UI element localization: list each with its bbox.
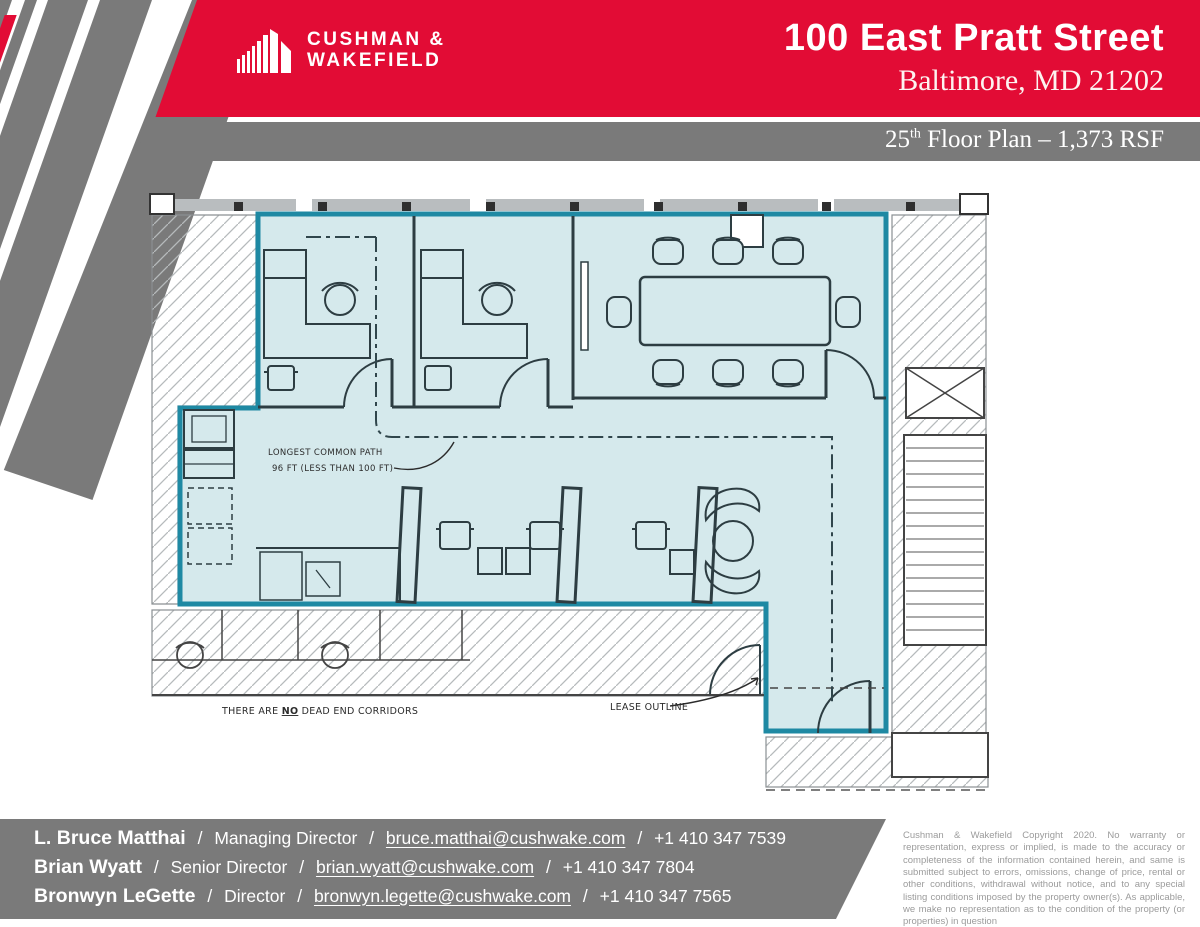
disclaimer-text: Cushman & Wakefield Copyright 2020. No w…: [903, 830, 1185, 927]
brand-name: CUSHMAN & WAKEFIELD: [307, 29, 446, 71]
flyer-page: LONGEST COMMON PATH 96 FT (LESS THAN 100…: [0, 0, 1200, 927]
window-wall: [150, 194, 988, 214]
separator: /: [154, 857, 159, 877]
contact-email[interactable]: bruce.matthai@cushwake.com: [386, 828, 626, 848]
contact-role: Managing Director: [214, 828, 357, 848]
annotation-common-path-1: LONGEST COMMON PATH: [268, 448, 383, 458]
contact-name: Bronwyn LeGette: [34, 885, 195, 907]
separator: /: [637, 828, 642, 848]
separator: /: [299, 857, 304, 877]
contact-row: L. Bruce Matthai / Managing Director / b…: [34, 827, 786, 850]
separator: /: [198, 828, 203, 848]
separator: /: [297, 886, 302, 906]
contact-name: L. Bruce Matthai: [34, 827, 186, 849]
contact-phone: +1 410 347 7565: [600, 886, 732, 906]
contact-phone: +1 410 347 7804: [563, 857, 695, 877]
conference-table: [640, 277, 830, 345]
contact-role: Senior Director: [171, 857, 288, 877]
contact-row: Brian Wyatt / Senior Director / brian.wy…: [34, 856, 695, 879]
separator: /: [369, 828, 374, 848]
floor-banner-text: 25th Floor Plan – 1,373 RSF: [464, 126, 1164, 154]
page-subtitle: Baltimore, MD 21202: [464, 64, 1164, 98]
brand-logo: CUSHMAN & WAKEFIELD: [237, 25, 446, 75]
annotation-lease-outline: LEASE OUTLINE: [610, 702, 688, 713]
page-title: 100 East Pratt Street: [464, 17, 1164, 60]
annotation-dead-end: THERE ARE NO DEAD END CORRIDORS: [221, 706, 418, 717]
contact-role: Director: [224, 886, 285, 906]
contact-name: Brian Wyatt: [34, 856, 142, 878]
separator: /: [583, 886, 588, 906]
annotation-common-path-2: 96 FT (LESS THAN 100 FT): [272, 464, 393, 474]
separator: /: [207, 886, 212, 906]
separator: /: [546, 857, 551, 877]
building-icon: [237, 25, 295, 75]
contact-phone: +1 410 347 7539: [654, 828, 786, 848]
contact-row: Bronwyn LeGette / Director / bronwyn.leg…: [34, 885, 732, 908]
contact-email[interactable]: brian.wyatt@cushwake.com: [316, 857, 534, 877]
contact-email[interactable]: bronwyn.legette@cushwake.com: [314, 886, 571, 906]
exit-vestibule: [892, 733, 988, 777]
